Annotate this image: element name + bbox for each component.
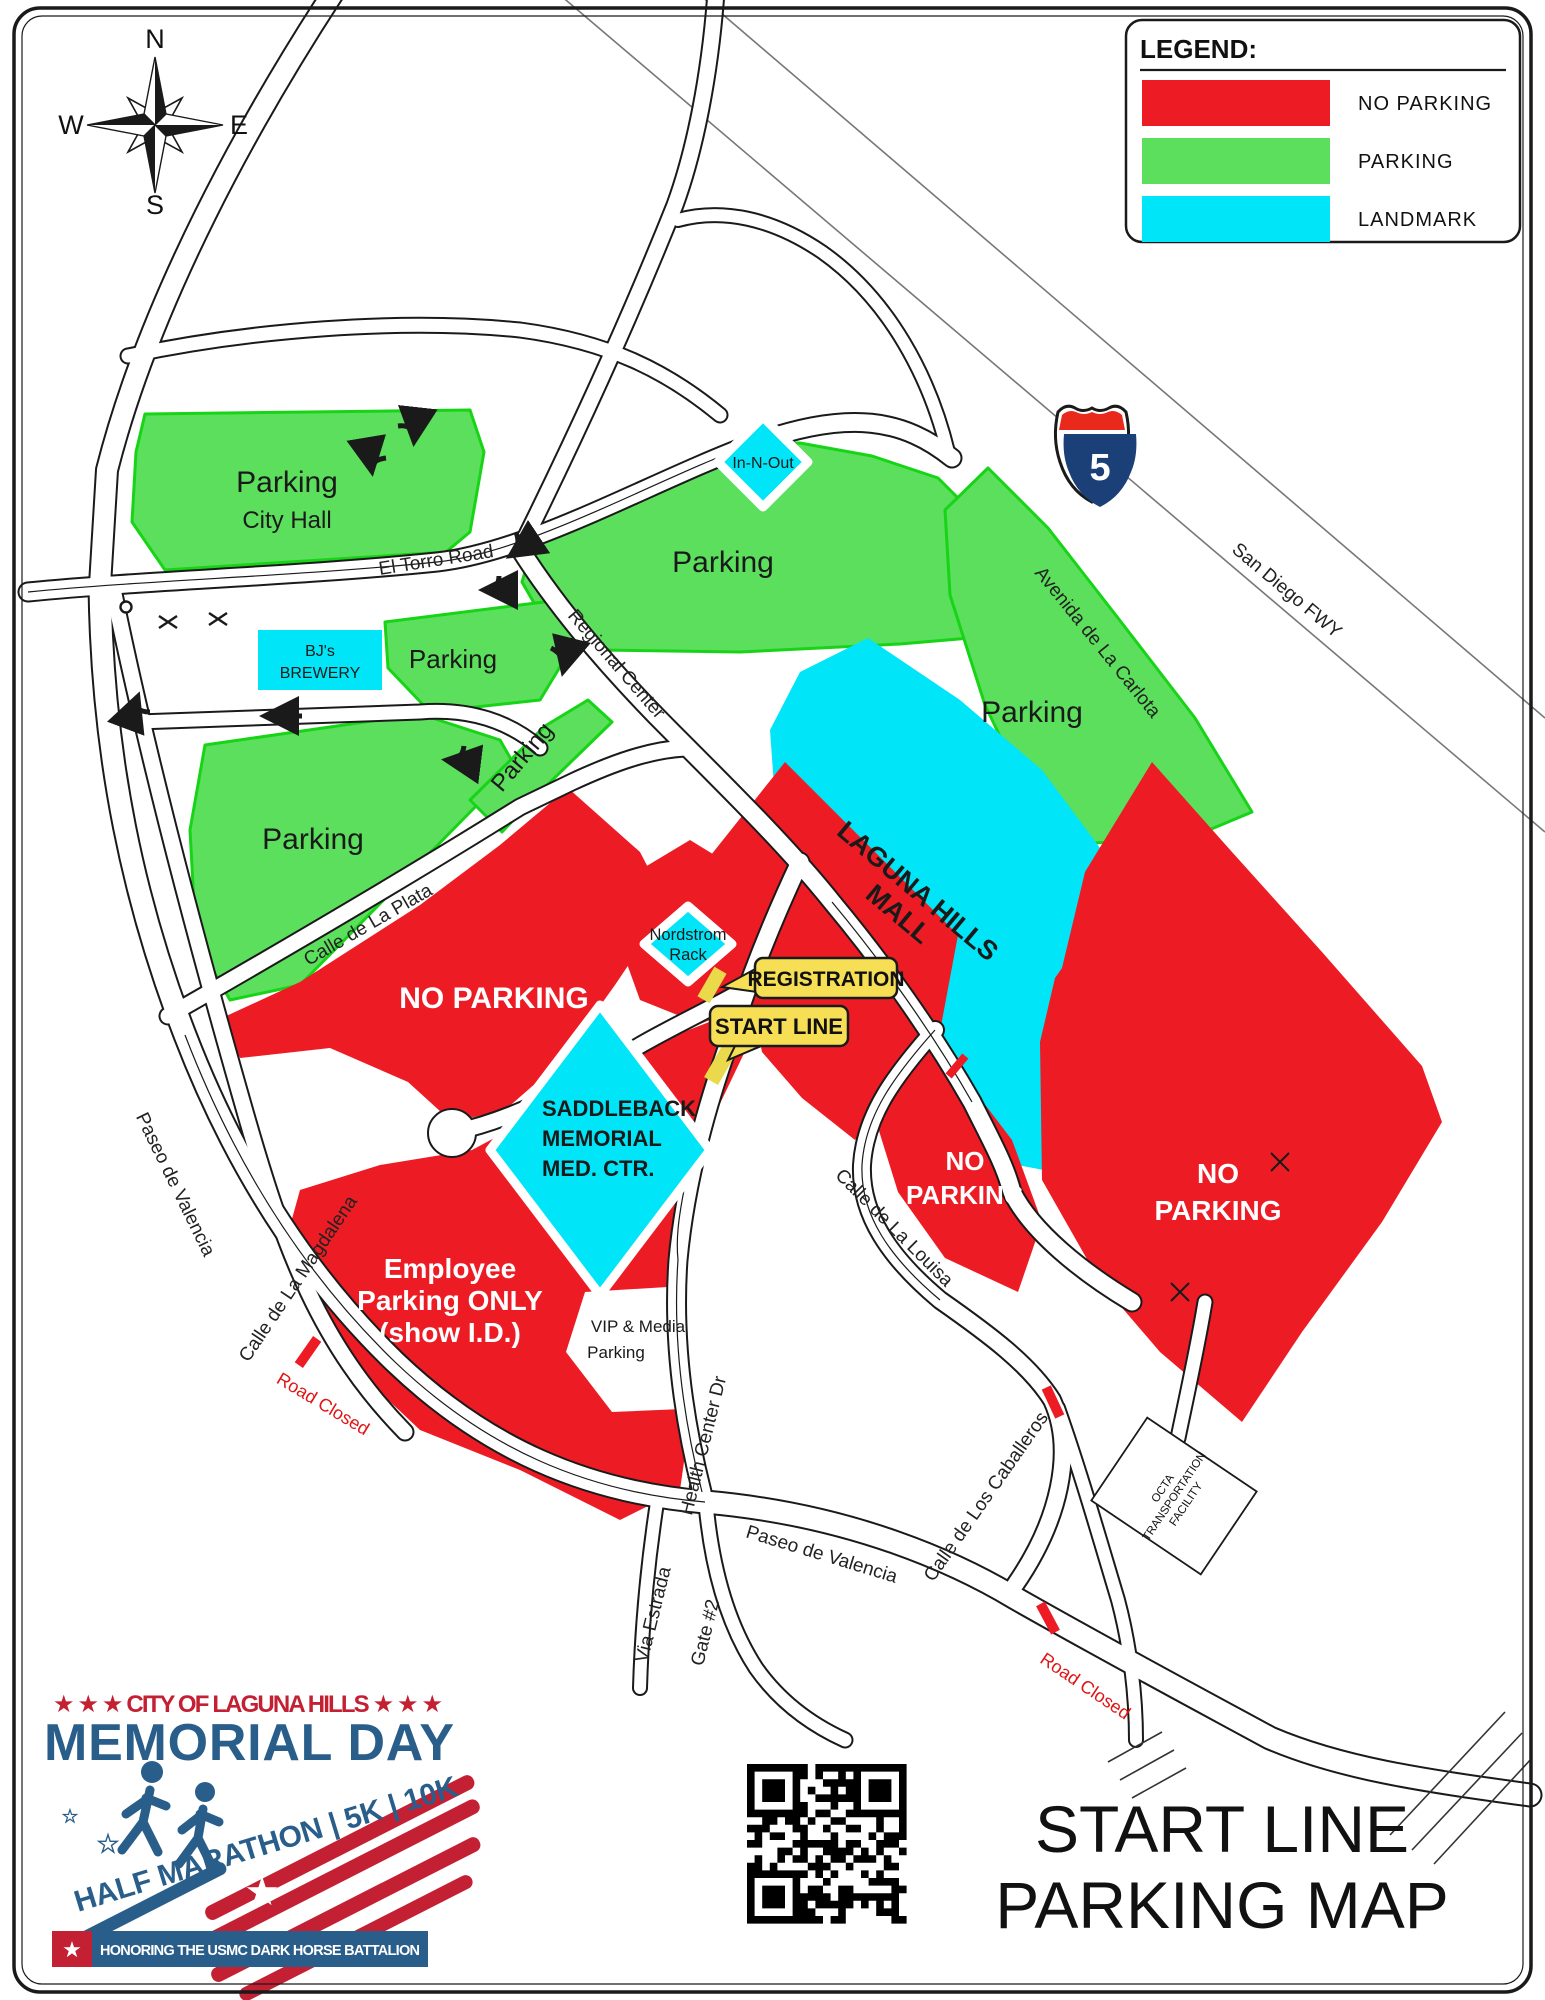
logo-banner: ★ HONORING THE USMC DARK HORSE BATTALION xyxy=(52,1931,428,1967)
vip-label-1: VIP & Media xyxy=(591,1317,686,1336)
legend: LEGEND: NO PARKING PARKING LANDMARK xyxy=(1126,20,1520,242)
logo-title: MEMORIAL DAY xyxy=(44,1714,456,1772)
page-title-line-1: START LINE xyxy=(1035,1792,1409,1866)
nordstrom-label-2: Rack xyxy=(669,946,707,964)
gate-2-label: Gate #2 xyxy=(687,1597,724,1668)
san-diego-fwy-label: San Diego FWY xyxy=(1228,539,1346,643)
legend-label-parking: PARKING xyxy=(1358,151,1454,173)
city-hall-parking-label: Parking xyxy=(236,466,338,499)
employee-label-3: (show I.D.) xyxy=(379,1317,521,1348)
employee-label-2: Parking ONLY xyxy=(357,1285,543,1316)
no-parking-east-label-1: NO xyxy=(1197,1158,1239,1189)
compass-east: E xyxy=(230,110,248,140)
page-title: START LINE PARKING MAP xyxy=(995,1792,1449,1942)
paseo-de-valencia-label-1: Paseo de Valencia xyxy=(131,1109,219,1260)
no-parking-west-label: NO PARKING xyxy=(399,982,588,1015)
no-parking-small-label-2: PARKING xyxy=(906,1180,1024,1210)
compass-west: W xyxy=(58,110,84,140)
page-title-line-2: PARKING MAP xyxy=(995,1868,1449,1942)
legend-swatch-no-parking xyxy=(1142,80,1330,126)
legend-label-no-parking: NO PARKING xyxy=(1358,93,1492,115)
logo-star-white: ★ xyxy=(244,1870,280,1914)
city-hall-label: City Hall xyxy=(242,507,331,534)
bjs-label-2: BREWERY xyxy=(280,665,361,682)
legend-swatch-parking xyxy=(1142,138,1330,184)
start-line-badge: START LINE xyxy=(715,1014,843,1039)
compass-north: N xyxy=(145,24,165,54)
no-parking-east-label-2: PARKING xyxy=(1154,1195,1281,1226)
qr-code xyxy=(747,1764,907,1924)
parking-map: OCTA TRANSPORTATION FACILITY Parking Cit… xyxy=(0,0,1545,2000)
interstate-number: 5 xyxy=(1089,447,1110,489)
logo-banner-star: ★ xyxy=(62,1937,82,1962)
zone-no-parking-east xyxy=(1040,762,1442,1422)
parking-left-label: Parking xyxy=(262,823,364,856)
octa-facility: OCTA TRANSPORTATION FACILITY xyxy=(1090,1416,1258,1576)
logo-star-outline-2: ★ xyxy=(62,1807,77,1826)
interstate-5-shield: 5 xyxy=(1055,406,1136,507)
legend-label-landmark: LANDMARK xyxy=(1358,209,1477,231)
legend-title: LEGEND: xyxy=(1140,34,1257,64)
employee-label-1: Employee xyxy=(384,1253,516,1284)
compass-south: S xyxy=(146,190,164,220)
saddleback-label-3: MED. CTR. xyxy=(542,1156,654,1181)
nordstrom-label-1: Nordstrom xyxy=(649,926,726,944)
no-parking-small-label-1: NO xyxy=(946,1146,985,1176)
saddleback-label-1: SADDLEBACK xyxy=(542,1096,696,1121)
logo-star-outline-1: ★ xyxy=(97,1831,119,1858)
parking-right-label: Parking xyxy=(981,696,1083,729)
parking-mid-label: Parking xyxy=(672,546,774,579)
legend-swatch-landmark xyxy=(1142,196,1330,242)
event-logo: ★ ★ ★ CITY OF LAGUNA HILLS ★ ★ ★ MEMORIA… xyxy=(44,1691,483,2000)
bjs-label-1: BJ's xyxy=(305,643,335,660)
logo-banner-text: HONORING THE USMC DARK HORSE BATTALION xyxy=(100,1943,420,1959)
registration-badge: REGISTRATION xyxy=(747,968,904,991)
vip-label-2: Parking xyxy=(587,1343,645,1362)
parking-bjs-lot-label: Parking xyxy=(409,644,497,674)
in-n-out-label: In-N-Out xyxy=(732,455,794,472)
saddleback-label-2: MEMORIAL xyxy=(542,1126,662,1151)
